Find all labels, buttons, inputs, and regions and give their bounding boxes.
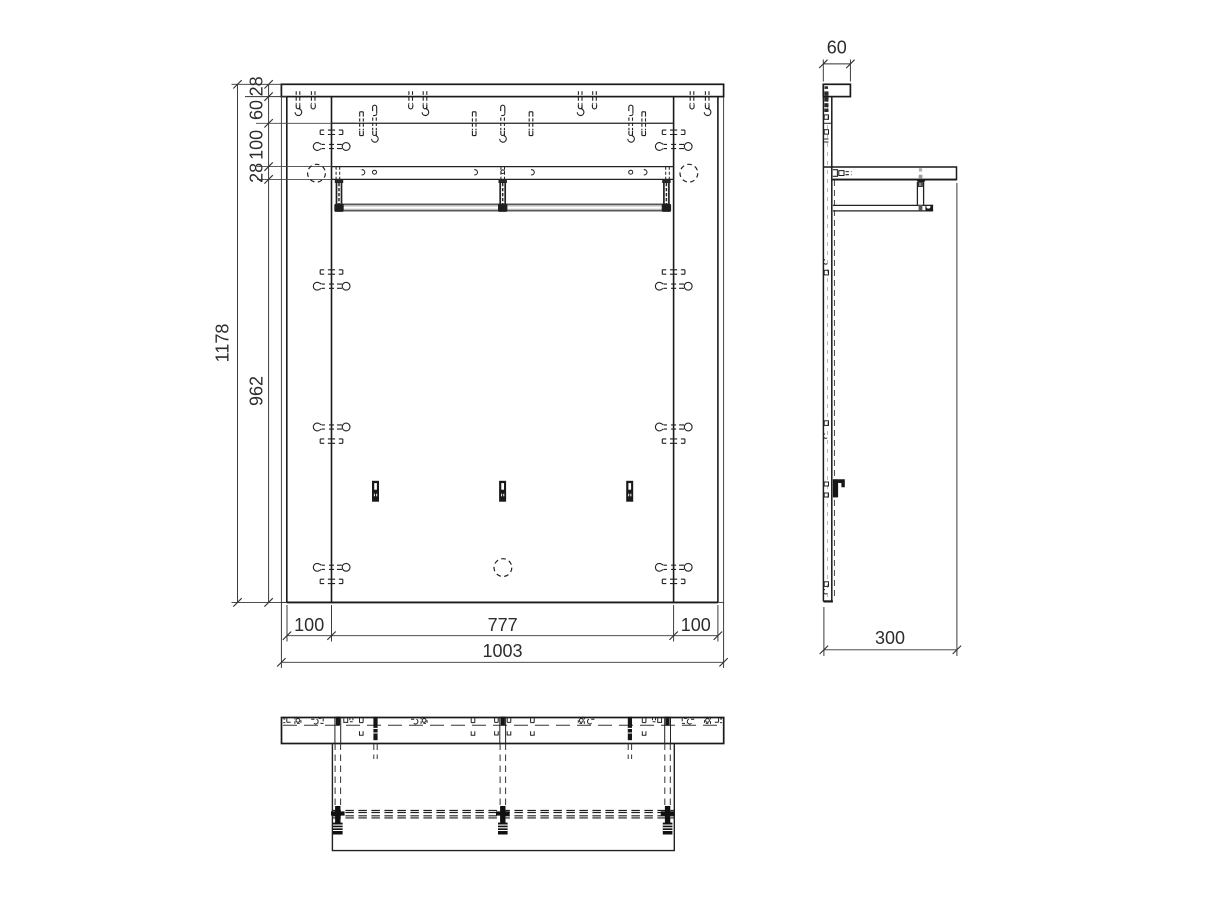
svg-text:60: 60: [827, 38, 847, 58]
svg-text:1003: 1003: [482, 641, 522, 661]
svg-text:1178: 1178: [213, 324, 233, 363]
svg-text:100: 100: [681, 615, 711, 635]
svg-text:28: 28: [247, 76, 267, 96]
svg-text:100: 100: [294, 615, 324, 635]
svg-text:777: 777: [488, 615, 518, 635]
svg-text:100: 100: [247, 130, 267, 160]
svg-text:28: 28: [247, 163, 267, 183]
svg-text:60: 60: [247, 100, 267, 120]
svg-text:962: 962: [247, 376, 267, 406]
svg-text:300: 300: [875, 628, 905, 648]
